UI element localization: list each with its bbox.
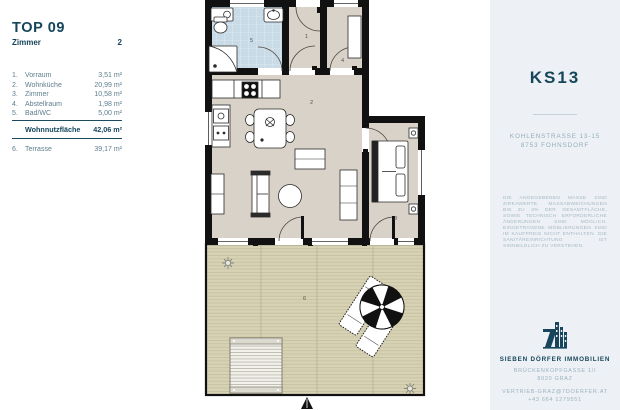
room-list-item: 1. Vorraum 3,51 m² — [12, 71, 122, 81]
room-number-terrasse: 6 — [303, 296, 306, 302]
room-number-vorraum: 1 — [305, 34, 308, 40]
rooms-count-value: 2 — [118, 38, 122, 47]
room-list-item: 5. Bad/WC 5,00 m² — [12, 109, 122, 119]
rooms-count-label: Zimmer — [12, 38, 41, 47]
company-logo-icon — [541, 320, 569, 350]
sideboard — [295, 149, 325, 169]
total-label: Wohnnutzfläche — [12, 125, 93, 134]
disclaimer-text: DIE ANGEGEBENEN MASSE SIND ZIRKAWERTE. M… — [503, 196, 607, 250]
rooms-count-row: Zimmer 2 — [12, 38, 122, 47]
room-list-item: 2. Wohnküche 20,99 m² — [12, 81, 122, 91]
terrace-table — [230, 338, 282, 393]
terrace — [206, 241, 424, 395]
coffee-table — [279, 185, 302, 208]
floor-plan: 1 2 3 4 5 6 — [200, 0, 430, 410]
living-area-total-row: Wohnnutzfläche 42,06 m² — [12, 120, 122, 139]
project-address: KOHLENSTRASSE 13-15 8753 FOHNSDORF — [490, 132, 620, 150]
floorplan-sheet: TOP 09 Zimmer 2 1. Vorraum 3,51 m² 2. Wo… — [0, 0, 620, 410]
project-info-panel: KS13 KOHLENSTRASSE 13-15 8753 FOHNSDORF … — [490, 0, 620, 410]
storage-shelf — [348, 16, 361, 58]
total-value: 42,06 m² — [93, 125, 122, 134]
company-name: SIEBEN DÖRFER IMMOBILIEN — [490, 356, 620, 363]
company-address: BRÜCKENKOPFGASSE 1/I 8020 GRAZ — [490, 368, 620, 383]
contact-phone: +43 664 1279551 — [490, 397, 620, 405]
room-list-item: 4. Abstellraum 1,98 m² — [12, 100, 122, 110]
divider — [533, 114, 577, 115]
room-number-abstellraum: 4 — [341, 58, 344, 64]
room-list-item: 3. Zimmer 10,58 m² — [12, 90, 122, 100]
room-number-zimmer: 3 — [394, 216, 397, 222]
room-list: 1. Vorraum 3,51 m² 2. Wohnküche 20,99 m²… — [12, 71, 122, 119]
wardrobe — [211, 174, 224, 214]
project-title: KS13 — [490, 68, 620, 88]
floor-plan-drawing: 1 2 3 4 5 6 — [200, 0, 430, 410]
unit-info-panel: TOP 09 Zimmer 2 1. Vorraum 3,51 m² 2. Wo… — [0, 0, 195, 410]
compass-icon — [301, 397, 313, 409]
sofa — [251, 171, 270, 217]
company-contact: VERTRIEB-GRAZ@7DOERFER.AT +43 664 127955… — [490, 389, 620, 404]
tv-bench — [340, 170, 357, 220]
terrace-row: 6. Terrasse 39,17 m² — [12, 145, 122, 155]
contact-email: VERTRIEB-GRAZ@7DOERFER.AT — [490, 389, 620, 397]
room-number-wohnkueche: 2 — [310, 100, 313, 106]
unit-title: TOP 09 — [12, 20, 65, 36]
room-number-bad: 5 — [250, 38, 253, 44]
